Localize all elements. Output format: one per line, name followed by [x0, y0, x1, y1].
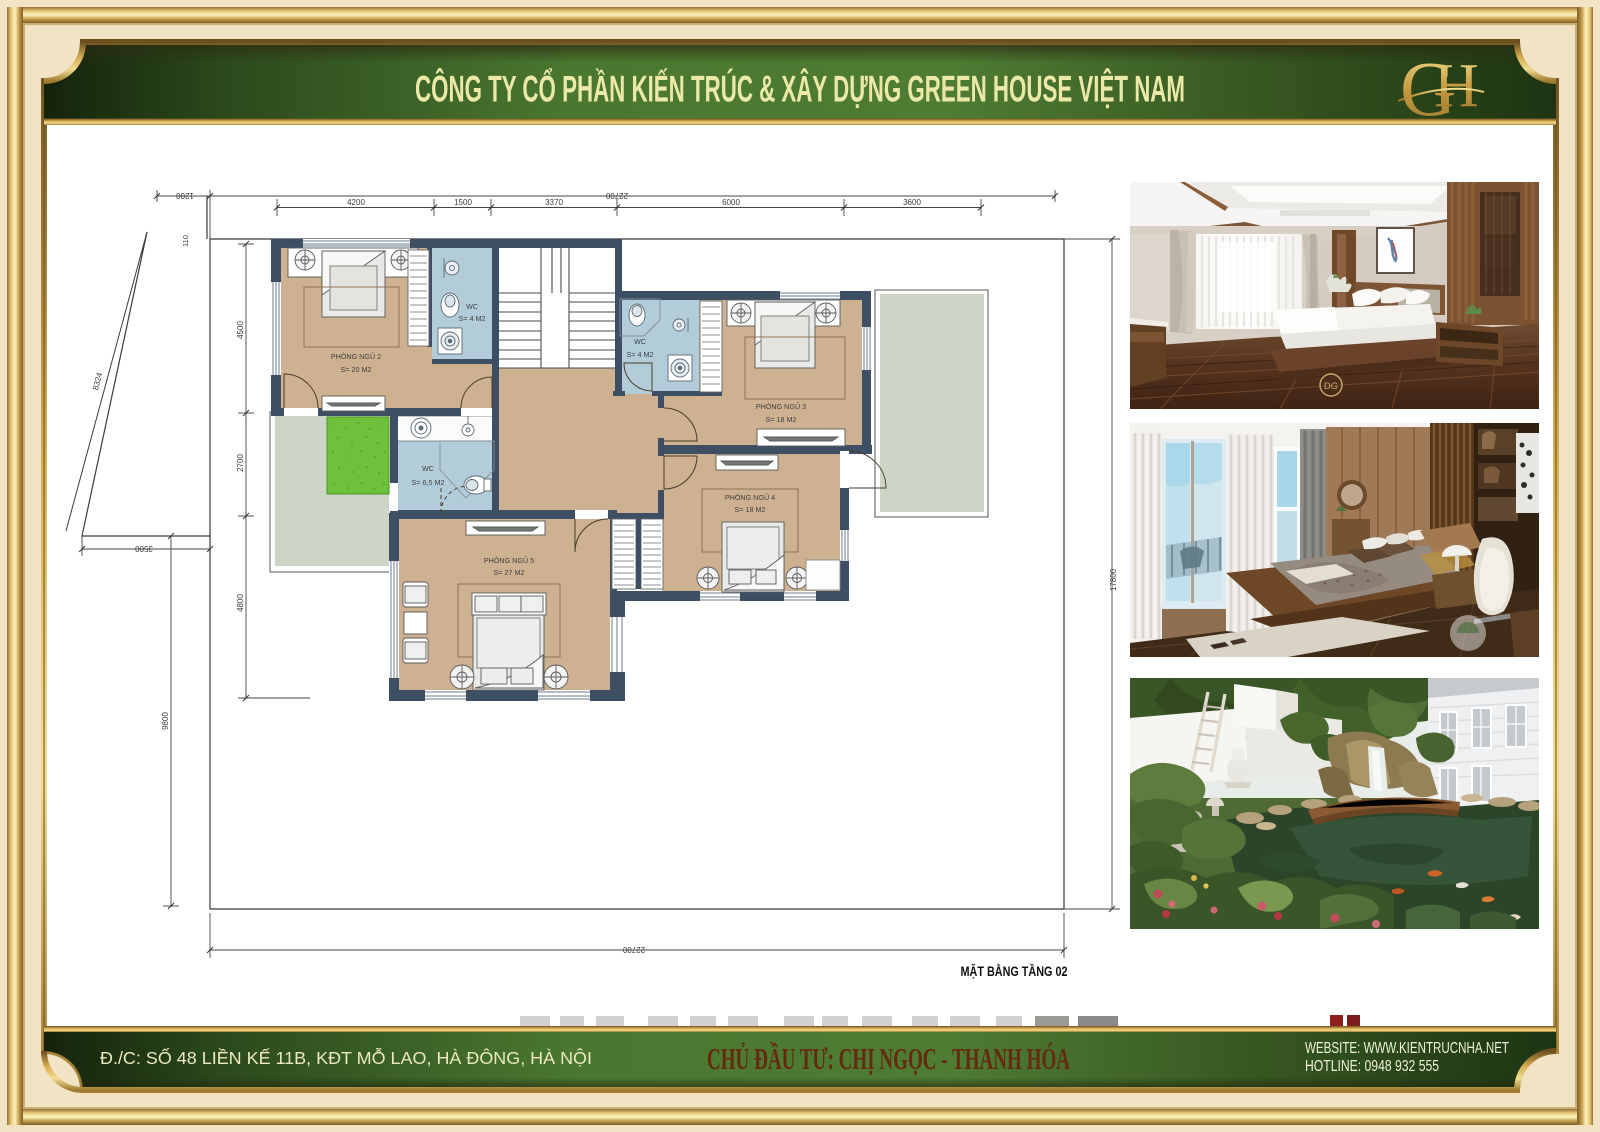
svg-text:22700: 22700 [622, 945, 645, 954]
svg-text:DG: DG [1324, 381, 1338, 392]
svg-text:3500: 3500 [135, 544, 153, 553]
svg-text:17800: 17800 [1109, 568, 1118, 591]
svg-text:9800: 9800 [161, 712, 170, 730]
svg-text:PHÒNG NGỦ 5: PHÒNG NGỦ 5 [484, 556, 534, 565]
svg-text:S= 18 M2: S= 18 M2 [735, 505, 766, 514]
svg-text:4200: 4200 [347, 198, 365, 207]
svg-text:WC: WC [466, 302, 478, 311]
svg-text:H: H [1434, 52, 1479, 120]
svg-text:110: 110 [181, 235, 190, 247]
svg-text:HOTLINE: 0948 932 555: HOTLINE: 0948 932 555 [1305, 1058, 1439, 1075]
svg-text:1500: 1500 [454, 198, 472, 207]
svg-text:S= 6,5 M2: S= 6,5 M2 [412, 478, 445, 487]
svg-text:PHÒNG NGỦ 4: PHÒNG NGỦ 4 [725, 493, 775, 502]
svg-text:S= 20 M2: S= 20 M2 [341, 365, 372, 374]
svg-text:3370: 3370 [545, 198, 563, 207]
svg-text:S= 27 M2: S= 27 M2 [494, 568, 525, 577]
svg-text:4800: 4800 [236, 594, 245, 612]
svg-text:PHÒNG NGỦ 3: PHÒNG NGỦ 3 [756, 402, 806, 411]
svg-text:WC: WC [422, 464, 434, 473]
svg-text:6000: 6000 [722, 198, 740, 207]
svg-text:Đ./C: SỐ 48 LIỀN KẾ 11B, KĐT M: Đ./C: SỐ 48 LIỀN KẾ 11B, KĐT MỖ LAO, HÀ … [100, 1047, 592, 1068]
svg-text:S= 4 M2: S= 4 M2 [459, 314, 486, 323]
svg-text:CÔNG TY CỔ PHẦN KIẾN TRÚC & XÂ: CÔNG TY CỔ PHẦN KIẾN TRÚC & XÂY DỰNG GRE… [415, 67, 1185, 110]
svg-text:2700: 2700 [236, 454, 245, 472]
svg-text:WEBSITE: WWW.KIENTRUCNHA.NET: WEBSITE: WWW.KIENTRUCNHA.NET [1305, 1040, 1509, 1057]
svg-text:1200: 1200 [176, 191, 194, 200]
svg-text:22700: 22700 [605, 191, 628, 200]
svg-text:S= 18 M2: S= 18 M2 [766, 415, 797, 424]
svg-text:4500: 4500 [236, 321, 245, 339]
svg-text:PHÒNG NGỦ 2: PHÒNG NGỦ 2 [331, 352, 381, 361]
svg-text:CHỦ ĐẦU TƯ: CHỊ NGỌC - THANH H: CHỦ ĐẦU TƯ: CHỊ NGỌC - THANH HÓA [707, 1040, 1070, 1076]
svg-text:S= 4 M2: S= 4 M2 [627, 350, 654, 359]
svg-text:3600: 3600 [903, 198, 921, 207]
svg-text:MẶT BẰNG TẦNG 02: MẶT BẰNG TẦNG 02 [961, 964, 1068, 979]
svg-text:WC: WC [634, 337, 646, 346]
